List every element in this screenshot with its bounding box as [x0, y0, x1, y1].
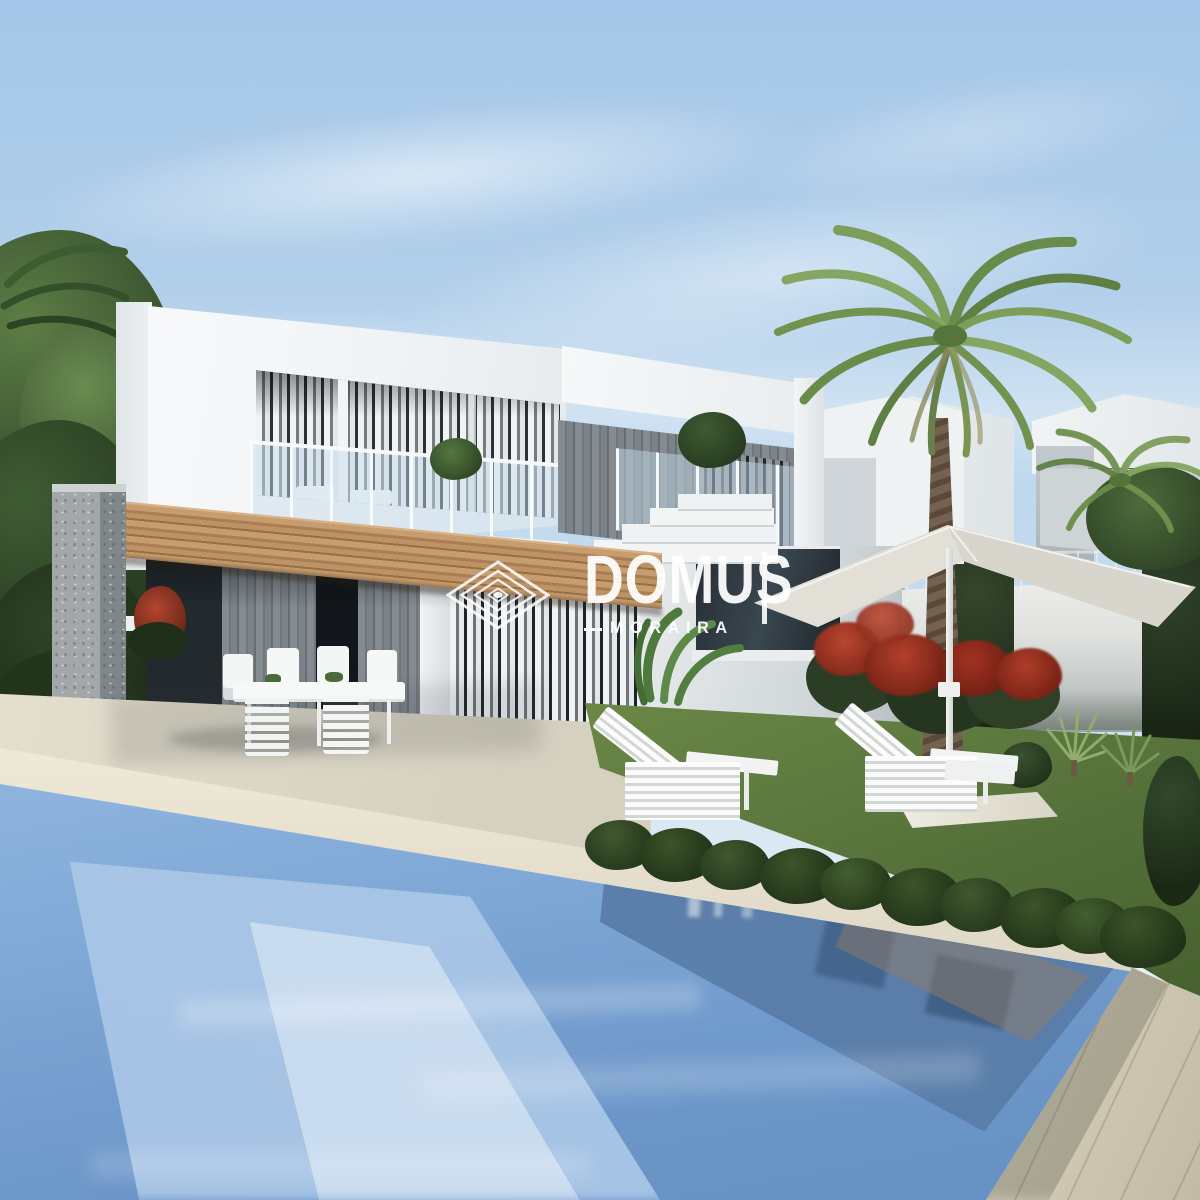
dining-chair-front: [323, 696, 369, 754]
location-name: MORAIRA: [610, 618, 734, 638]
table-leg: [317, 700, 321, 746]
sun-lounger: [845, 692, 1065, 827]
dining-set: [205, 640, 440, 760]
villa-exterior-scene: DOMUS MORAIRA: [0, 0, 1200, 1200]
brand-logo-icon: [446, 560, 550, 630]
stone-pillar-cap: [52, 484, 126, 492]
lounger-leg: [744, 770, 749, 810]
sun-lounger: [598, 698, 813, 833]
exterior-step: [678, 494, 772, 511]
water-ripple: [90, 1152, 590, 1178]
location-dash: [584, 628, 602, 631]
table-plant: [325, 672, 343, 682]
watermark: DOMUS MORAIRA: [438, 542, 808, 647]
dining-chair-front: [245, 698, 289, 756]
overhanging-branches: [0, 222, 135, 347]
lounger-base: [625, 762, 740, 820]
shrub: [700, 840, 770, 890]
shrub: [1100, 906, 1186, 968]
table-leg: [387, 700, 391, 744]
bush-base: [128, 622, 188, 660]
balcony-planter-plant: [430, 438, 482, 480]
separator-bar: [762, 552, 767, 624]
